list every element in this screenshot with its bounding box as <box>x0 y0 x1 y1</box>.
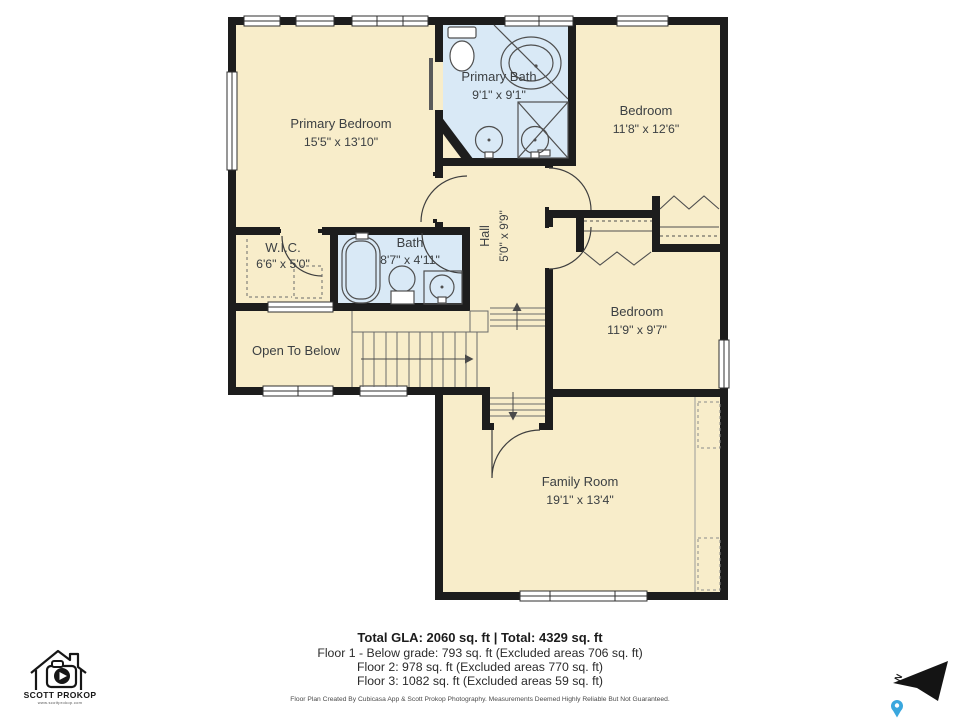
window <box>244 16 280 26</box>
window <box>505 16 573 26</box>
room-label-bedroom-top: Bedroom <box>620 103 673 118</box>
window <box>296 16 334 26</box>
room-dims-family-room: 19'1" x 13'4" <box>546 493 613 507</box>
window <box>360 386 407 396</box>
room-dims-bath: 8'7" x 4'11" <box>380 253 440 267</box>
logo-url: www.scottprokop.com <box>38 700 83 705</box>
room-label-primary-bedroom: Primary Bedroom <box>290 116 391 131</box>
sliding-door-primary-bath <box>429 58 433 110</box>
room-label-primary-bath: Primary Bath <box>461 69 536 84</box>
window <box>617 16 668 26</box>
footer-floor1: Floor 1 - Below grade: 793 sq. ft (Exclu… <box>317 646 642 660</box>
footer-total-gla: Total GLA: 2060 sq. ft | Total: 4329 sq.… <box>357 630 603 645</box>
room-dims-primary-bedroom: 15'5" x 13'10" <box>304 135 378 149</box>
room-label-wic: W.I.C. <box>265 240 300 255</box>
scott-prokop-logo: SCOTT PROKOP www.scottprokop.com <box>24 651 97 705</box>
room-dims-bedroom-mid: 11'9" x 9'7" <box>607 323 667 337</box>
floor-plan: Primary Bedroom 15'5" x 13'10" Primary B… <box>0 0 960 720</box>
logo-camera-icon <box>47 661 76 687</box>
window <box>268 302 333 312</box>
compass: N <box>891 661 948 718</box>
room-label-bath: Bath <box>397 235 424 250</box>
footer-floor2: Floor 2: 978 sq. ft (Excluded areas 770 … <box>357 660 603 674</box>
room-dims-primary-bath: 9'1" x 9'1" <box>472 88 526 102</box>
room-label-open-to-below: Open To Below <box>252 343 341 358</box>
north-arrow-icon <box>893 661 948 701</box>
window <box>719 340 729 388</box>
location-pin-icon <box>891 700 903 718</box>
room-dims-hall: 5'0" x 9'9" <box>497 210 511 262</box>
room-label-family-room: Family Room <box>542 474 619 489</box>
toilet-icon <box>448 27 476 38</box>
room-dims-bedroom-top: 11'8" x 12'6" <box>613 122 680 136</box>
footer-disclaimer: Floor Plan Created By Cubicasa App & Sco… <box>290 696 670 703</box>
window <box>352 16 428 26</box>
footer: Total GLA: 2060 sq. ft | Total: 4329 sq.… <box>290 630 670 703</box>
window <box>520 591 647 601</box>
window <box>227 72 237 170</box>
room-label-hall: Hall <box>478 225 492 247</box>
window <box>263 386 333 396</box>
footer-floor3: Floor 3: 1082 sq. ft (Excluded areas 59 … <box>357 674 603 688</box>
floor-plan-page: Primary Bedroom 15'5" x 13'10" Primary B… <box>0 0 960 720</box>
room-label-bedroom-mid: Bedroom <box>611 304 664 319</box>
logo-name: SCOTT PROKOP <box>24 690 97 700</box>
room-dims-wic: 6'6" x 5'0" <box>256 257 310 271</box>
